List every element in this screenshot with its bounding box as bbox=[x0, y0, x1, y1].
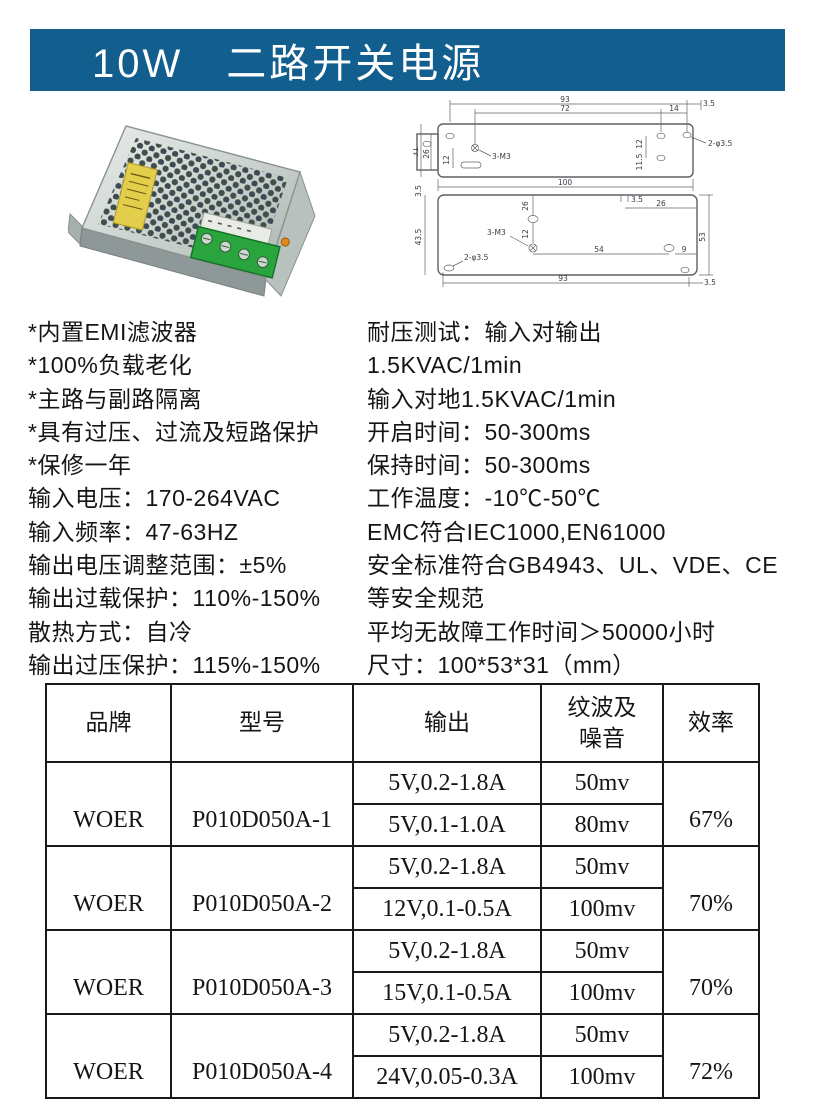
datasheet-page: 10W 二路开关电源 bbox=[0, 0, 813, 1116]
spec-column-right: 耐压测试：输入对输出 1.5KVAC/1min 输入对地1.5KVAC/1min… bbox=[367, 316, 812, 682]
spec-line: 工作温度：-10℃-50℃ bbox=[367, 482, 812, 515]
table-row: WOER P010D050A-4 5V,0.2-1.8A 50mv 72% bbox=[46, 1014, 759, 1056]
screw-label-top: 3-M3 bbox=[492, 152, 511, 161]
brand-cell: WOER bbox=[46, 762, 171, 846]
efficiency-cell: 70% bbox=[663, 846, 759, 930]
dim-14: 14 bbox=[669, 104, 679, 113]
dim-93-top: 93 bbox=[560, 95, 570, 104]
output-cell: 24V,0.05-0.3A bbox=[353, 1056, 541, 1098]
ripple-cell: 100mv bbox=[541, 888, 663, 930]
spec-line: 输入电压：170-264VAC bbox=[28, 482, 373, 515]
output-cell: 5V,0.1-1.0A bbox=[353, 804, 541, 846]
spec-line: *100%负载老化 bbox=[28, 349, 373, 382]
gap-3p5: 3.5 bbox=[414, 185, 423, 197]
dim-26-left: 26 bbox=[422, 149, 431, 159]
model-cell: P010D050A-4 bbox=[171, 1014, 353, 1098]
model-cell: P010D050A-3 bbox=[171, 930, 353, 1014]
dim-53: 53 bbox=[698, 232, 707, 242]
spec-line: 耐压测试：输入对输出 bbox=[367, 316, 812, 349]
spec-line: 输入频率：47-63HZ bbox=[28, 516, 373, 549]
dim-100: 100 bbox=[558, 178, 573, 187]
spec-line: 散热方式：自冷 bbox=[28, 616, 373, 649]
output-cell: 5V,0.2-1.8A bbox=[353, 762, 541, 804]
output-cell: 5V,0.2-1.8A bbox=[353, 846, 541, 888]
header-brand: 品牌 bbox=[46, 684, 171, 762]
dim-12-right: 12 bbox=[635, 139, 644, 149]
psu-chassis bbox=[68, 126, 315, 296]
table-row: WOER P010D050A-1 5V,0.2-1.8A 50mv 67% bbox=[46, 762, 759, 804]
ripple-cell: 100mv bbox=[541, 1056, 663, 1098]
spec-line: 等安全规范 bbox=[367, 582, 812, 615]
model-cell: P010D050A-1 bbox=[171, 762, 353, 846]
header-efficiency: 效率 bbox=[663, 684, 759, 762]
efficiency-cell: 72% bbox=[663, 1014, 759, 1098]
spec-line: 开启时间：50-300ms bbox=[367, 416, 812, 449]
ripple-cell: 50mv bbox=[541, 846, 663, 888]
spec-line: *具有过压、过流及短路保护 bbox=[28, 416, 373, 449]
table-row: WOER P010D050A-3 5V,0.2-1.8A 50mv 70% bbox=[46, 930, 759, 972]
table-row: WOER P010D050A-2 5V,0.2-1.8A 50mv 70% bbox=[46, 846, 759, 888]
dim-93-side: 93 bbox=[558, 274, 568, 283]
spec-line: 输入对地1.5KVAC/1min bbox=[367, 383, 812, 416]
brand-cell: WOER bbox=[46, 1014, 171, 1098]
notch-3p5: 3.5 bbox=[631, 195, 643, 204]
dim-11p5: 11.5 bbox=[635, 153, 644, 170]
dim-12-side: 12 bbox=[521, 229, 530, 239]
product-photo bbox=[68, 98, 340, 308]
holes-label-top: 2-φ3.5 bbox=[708, 139, 733, 148]
spec-line: *主路与副路隔离 bbox=[28, 383, 373, 416]
header-output: 输出 bbox=[353, 684, 541, 762]
spec-line: 安全标准符合GB4943、UL、VDE、CE bbox=[367, 549, 812, 582]
dim-9: 9 bbox=[682, 245, 687, 254]
header-model: 型号 bbox=[171, 684, 353, 762]
output-cell: 5V,0.2-1.8A bbox=[353, 1014, 541, 1056]
top-view bbox=[417, 124, 693, 177]
model-table: 品牌 型号 输出 纹波及 噪音 效率 WOER P010D050A-1 5V,0… bbox=[45, 683, 760, 1099]
dim-3p5-botright: 3.5 bbox=[704, 278, 716, 287]
ripple-cell: 50mv bbox=[541, 762, 663, 804]
side-view-dims: 3.5 43.5 3.5 26 26 12 3-M3 54 9 2-φ3.5 bbox=[414, 185, 716, 287]
dim-54: 54 bbox=[594, 245, 604, 254]
holes-label-side: 2-φ3.5 bbox=[464, 253, 489, 262]
ripple-cell: 50mv bbox=[541, 1014, 663, 1056]
dim-3p5-topright: 3.5 bbox=[703, 99, 715, 108]
dim-31: 31 bbox=[413, 147, 420, 157]
ripple-cell: 80mv bbox=[541, 804, 663, 846]
screw-label-side: 3-M3 bbox=[487, 228, 506, 237]
spec-line: 输出过载保护：110%-150% bbox=[28, 582, 373, 615]
dim-26-vert: 26 bbox=[521, 201, 530, 211]
dim-72: 72 bbox=[560, 104, 570, 113]
output-cell: 5V,0.2-1.8A bbox=[353, 930, 541, 972]
model-cell: P010D050A-2 bbox=[171, 846, 353, 930]
page-title: 10W 二路开关电源 bbox=[92, 31, 484, 89]
header-bar: 10W 二路开关电源 bbox=[30, 29, 785, 91]
ripple-cell: 100mv bbox=[541, 972, 663, 1014]
efficiency-cell: 70% bbox=[663, 930, 759, 1014]
mechanical-drawing: 93 72 14 3.5 2-φ3.5 3-M3 31 26 12 bbox=[413, 92, 758, 297]
brand-cell: WOER bbox=[46, 846, 171, 930]
spec-line: EMC符合IEC1000,EN61000 bbox=[367, 516, 812, 549]
spec-column-left: *内置EMI滤波器 *100%负载老化 *主路与副路隔离 *具有过压、过流及短路… bbox=[28, 316, 373, 682]
ripple-cell: 50mv bbox=[541, 930, 663, 972]
spec-line: 1.5KVAC/1min bbox=[367, 349, 812, 382]
spec-line: 平均无故障工作时间＞50000小时 bbox=[367, 616, 812, 649]
power-supply-photo-illustration bbox=[68, 98, 340, 303]
output-cell: 15V,0.1-0.5A bbox=[353, 972, 541, 1014]
header-ripple: 纹波及 噪音 bbox=[541, 684, 663, 762]
dim-12-slot: 12 bbox=[442, 155, 451, 165]
spec-line: 保持时间：50-300ms bbox=[367, 449, 812, 482]
dim-26-side: 26 bbox=[656, 199, 666, 208]
spec-line: 输出过压保护：115%-150% bbox=[28, 649, 373, 682]
dimension-drawing: 93 72 14 3.5 2-φ3.5 3-M3 31 26 12 bbox=[413, 92, 758, 302]
spec-line: 尺寸：100*53*31（mm） bbox=[367, 649, 812, 682]
table-header-row: 品牌 型号 输出 纹波及 噪音 效率 bbox=[46, 684, 759, 762]
efficiency-cell: 67% bbox=[663, 762, 759, 846]
spec-line: *保修一年 bbox=[28, 449, 373, 482]
brand-cell: WOER bbox=[46, 930, 171, 1014]
spec-line: *内置EMI滤波器 bbox=[28, 316, 373, 349]
output-cell: 12V,0.1-0.5A bbox=[353, 888, 541, 930]
spec-line: 输出电压调整范围：±5% bbox=[28, 549, 373, 582]
dim-43p5: 43.5 bbox=[414, 228, 423, 245]
